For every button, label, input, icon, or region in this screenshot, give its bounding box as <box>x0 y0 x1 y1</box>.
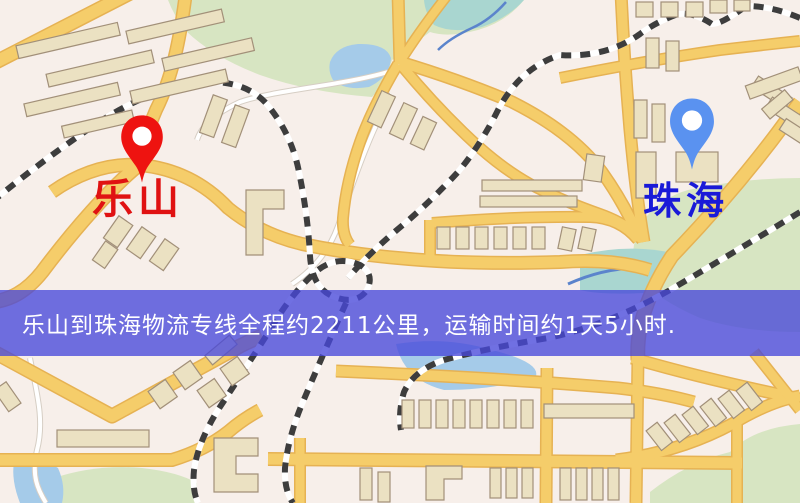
map-canvas[interactable] <box>0 0 800 503</box>
destination-label: 珠海 <box>643 182 729 220</box>
route-banner-text: 乐山到珠海物流专线全程约2211公里，运输时间约1天5小时. <box>22 306 676 340</box>
route-banner: 乐山到珠海物流专线全程约2211公里，运输时间约1天5小时. <box>0 290 800 356</box>
destination-pin-icon[interactable] <box>662 96 722 172</box>
origin-label: 乐山 <box>92 179 184 220</box>
